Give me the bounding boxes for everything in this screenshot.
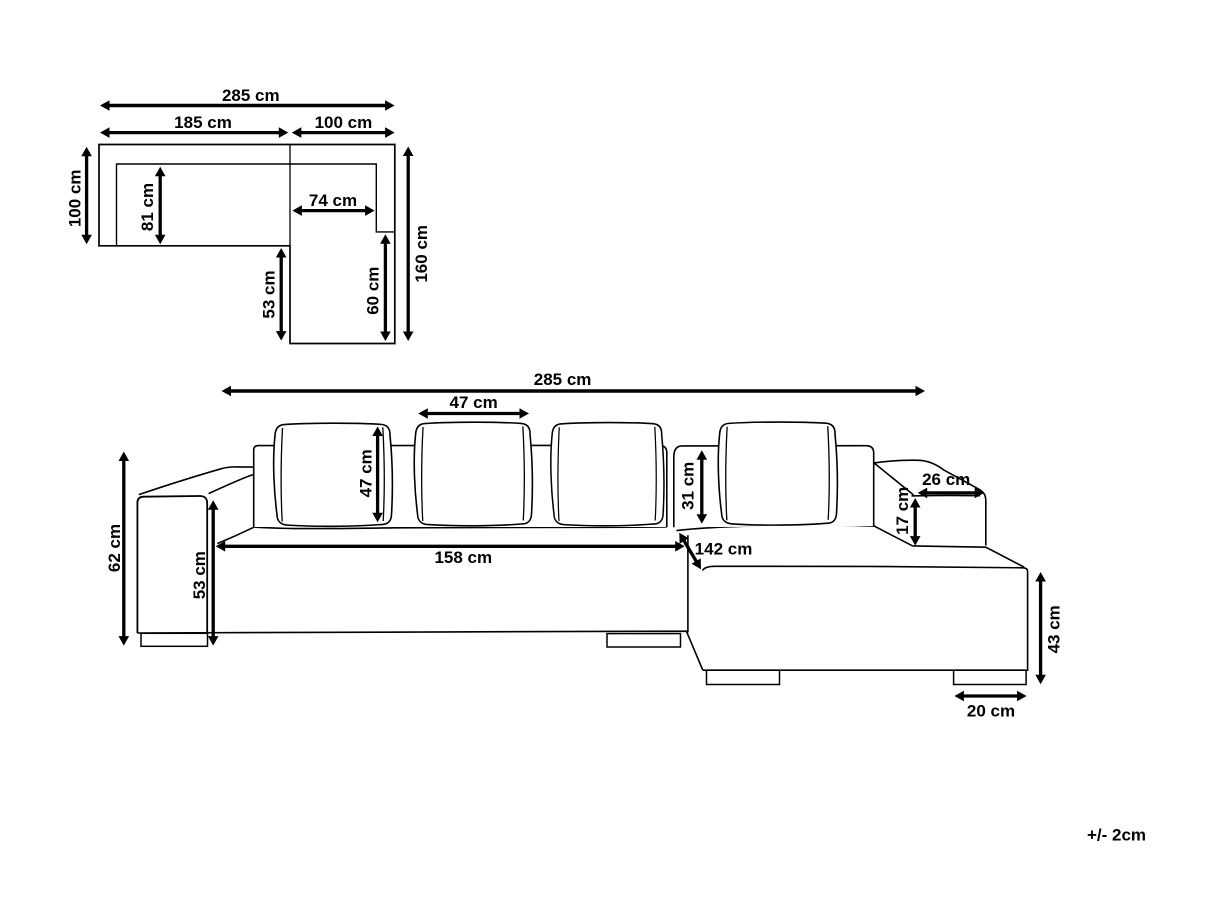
svg-text:47 cm: 47 cm — [356, 449, 375, 497]
svg-text:160 cm: 160 cm — [412, 225, 431, 283]
svg-text:81 cm: 81 cm — [138, 183, 157, 231]
svg-text:285 cm: 285 cm — [222, 86, 280, 105]
svg-text:43 cm: 43 cm — [1044, 605, 1063, 653]
svg-text:31 cm: 31 cm — [678, 462, 697, 510]
svg-text:+/- 2cm: +/- 2cm — [1087, 825, 1146, 844]
svg-text:60 cm: 60 cm — [364, 267, 383, 315]
svg-text:53 cm: 53 cm — [259, 270, 278, 318]
svg-text:53 cm: 53 cm — [190, 551, 209, 599]
svg-text:285 cm: 285 cm — [534, 370, 592, 389]
svg-text:100 cm: 100 cm — [315, 113, 373, 132]
svg-text:142 cm: 142 cm — [695, 540, 753, 559]
svg-text:62 cm: 62 cm — [105, 524, 124, 572]
svg-text:26 cm: 26 cm — [922, 470, 970, 489]
svg-text:185 cm: 185 cm — [174, 113, 232, 132]
svg-text:47 cm: 47 cm — [449, 393, 497, 412]
svg-text:20 cm: 20 cm — [967, 702, 1015, 721]
svg-text:74 cm: 74 cm — [309, 191, 357, 210]
svg-text:158 cm: 158 cm — [434, 548, 492, 567]
svg-text:17 cm: 17 cm — [893, 487, 912, 535]
svg-text:100 cm: 100 cm — [66, 169, 85, 227]
